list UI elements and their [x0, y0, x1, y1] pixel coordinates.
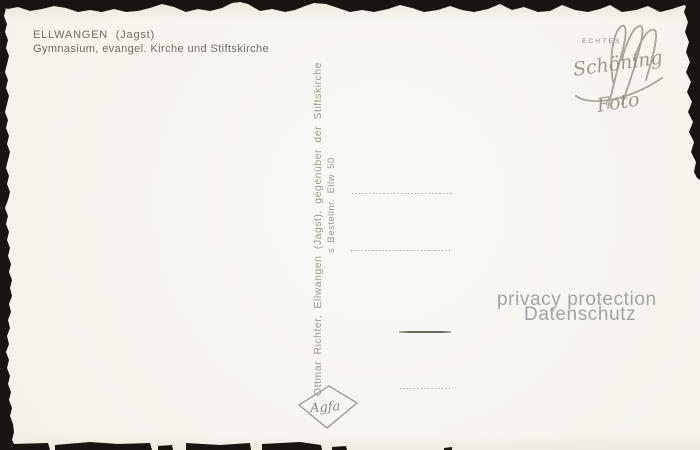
order-number-line: s Bestellnr. Ellw 50 [326, 24, 337, 253]
card-location-title: ELLWANGEN (Jagst) [33, 29, 269, 41]
publisher-imprint: Ottmar Richter, Ellwangen (Jagst), gegen… [312, 24, 337, 396]
agfa-script: Agfa [309, 399, 341, 416]
address-solid-line [399, 331, 451, 333]
caption-block: ELLWANGEN (Jagst) Gymnasium, evangel. Ki… [33, 29, 269, 55]
card-caption: Gymnasium, evangel. Kirche und Stiftskir… [33, 43, 269, 55]
logo-schoening-script: Schöning [572, 47, 664, 81]
address-dotted-line-3 [400, 388, 452, 390]
publisher-line: Ottmar Richter, Ellwangen (Jagst), gegen… [312, 24, 324, 396]
schoening-foto-logo-icon: ECHTES Schöning Foto [568, 18, 680, 122]
address-dotted-line-1 [352, 193, 452, 195]
address-dotted-line-2 [351, 250, 450, 252]
logo-foto-script: Foto [594, 89, 641, 118]
privacy-watermark: privacy protection Datenschutz [497, 292, 657, 322]
postcard-back-scan: ELLWANGEN (Jagst) Gymnasium, evangel. Ki… [0, 0, 700, 450]
logo-echtes-label: ECHTES [582, 38, 622, 45]
agfa-diamond-logo-icon: Agfa [295, 382, 361, 432]
